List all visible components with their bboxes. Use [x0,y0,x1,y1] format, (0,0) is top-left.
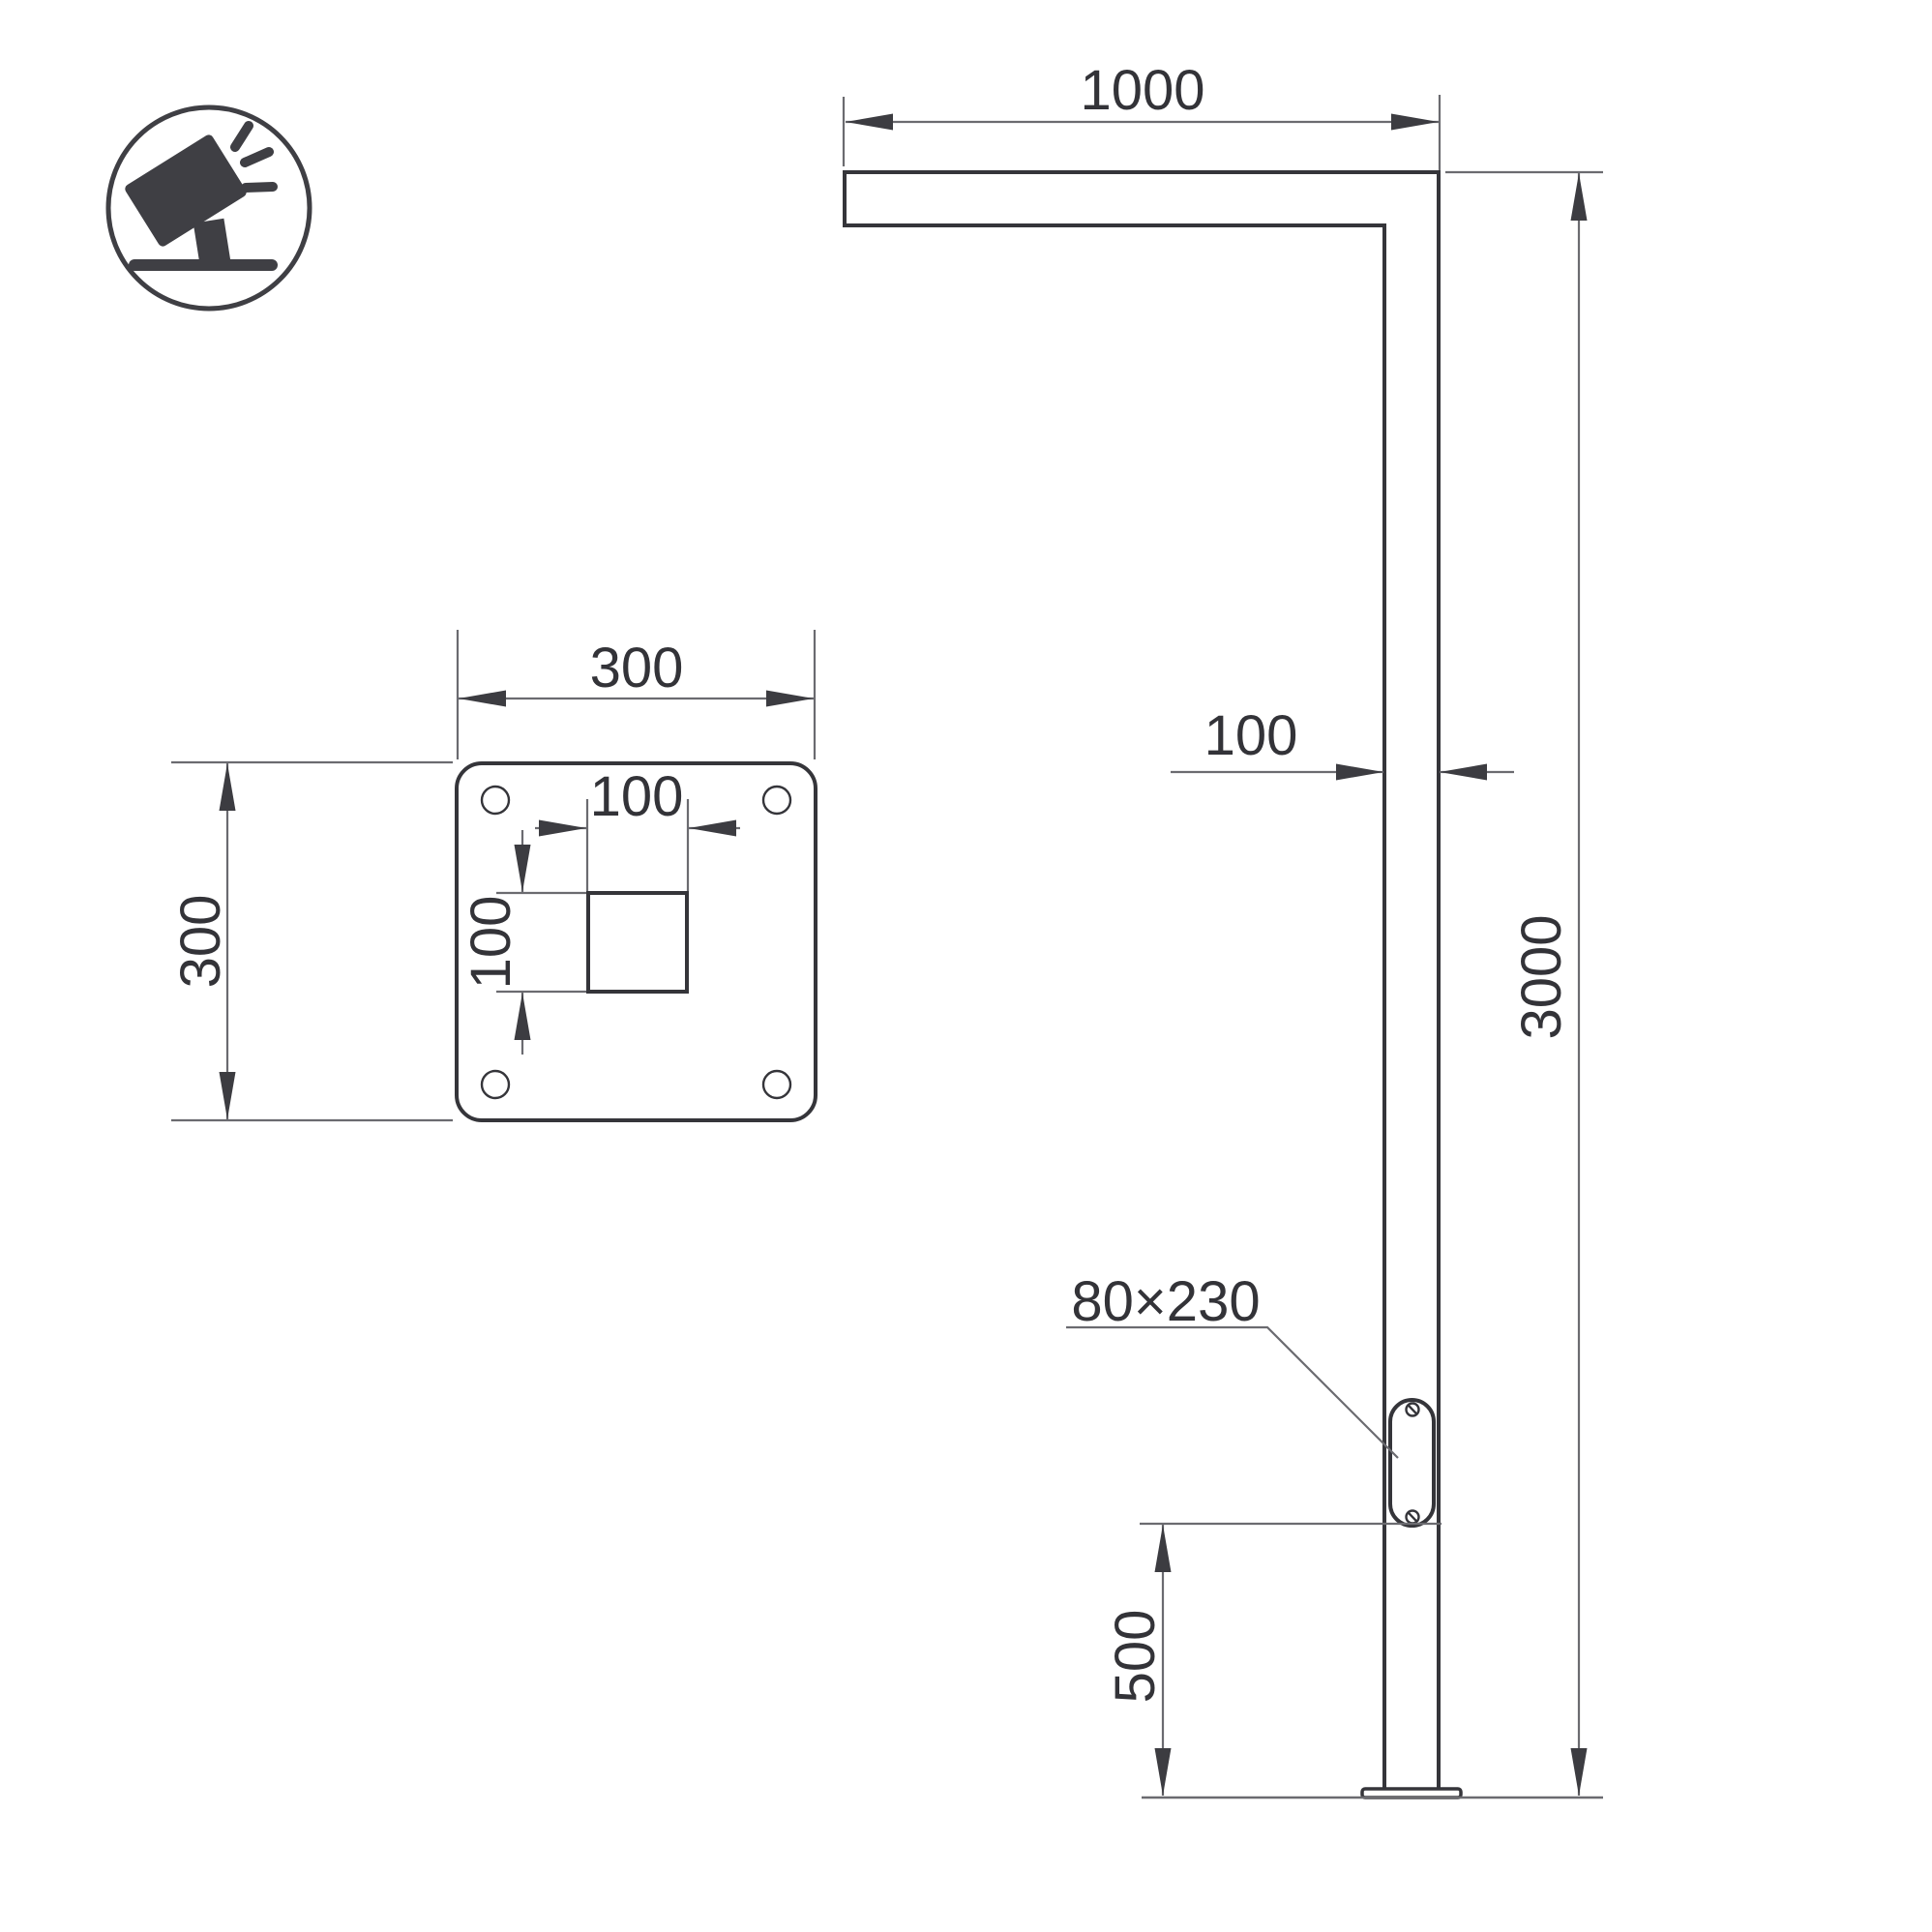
dim-label-pole-width: 100 [1204,704,1298,767]
dim-door-size: 80×230 [1066,1270,1398,1458]
dim-label-door-bottom-offset: 500 [1104,1610,1167,1704]
dim-door-bottom-offset: 500 [1104,1524,1442,1796]
dim-plate-height: 300 [169,762,453,1120]
dim-plate-width: 300 [458,630,815,759]
dim-arm-length: 1000 [844,59,1440,170]
light-rays-icon [235,126,273,188]
base-plate-detail-view: 300 300 100 100 [169,630,816,1120]
dim-pole-height: 3000 [1445,172,1603,1796]
dim-label-cutout-height: 100 [460,896,522,990]
technical-drawing-page: 300 300 100 100 [0,0,1932,1932]
floodlight-head [123,134,248,249]
pole-side-view: 80×230 1000 100 3000 500 [844,59,1603,1798]
base-flange [1362,1789,1461,1798]
pole-outline [845,172,1439,1789]
dim-label-door-size: 80×230 [1071,1270,1260,1333]
access-door [1390,1400,1434,1526]
dim-label-arm-length: 1000 [1080,59,1204,122]
floodlight-stand [193,219,230,265]
dim-label-cutout-width: 100 [590,765,684,828]
dim-pole-width: 100 [1171,704,1514,772]
floodlight-base [129,259,278,271]
dim-label-pole-height: 3000 [1510,914,1573,1039]
dim-label-plate-height: 300 [169,895,232,989]
pole-dimension-drawing: 300 300 100 100 [0,0,1932,1932]
tilted-floodlight-icon [108,107,310,309]
dim-label-plate-width: 300 [590,637,684,699]
